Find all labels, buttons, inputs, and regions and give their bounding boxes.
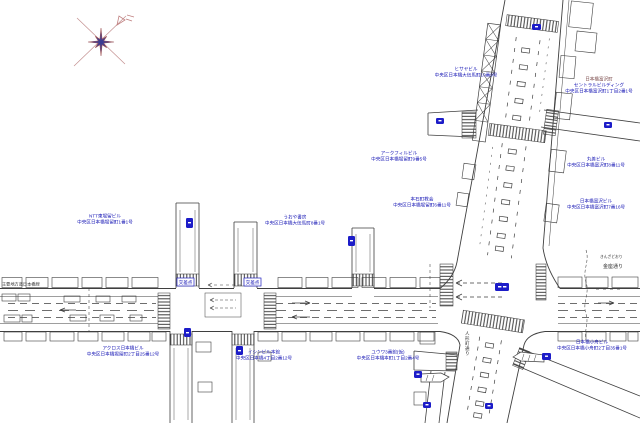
building-address: 中央区日本橋富沢町7番16号 [546,204,640,210]
building-label: 日本橋富沢ビル 中央区日本橋富沢町7番16号 [546,198,640,210]
building-address: 中央区日本橋堀留町2丁目25番12号 [73,351,173,357]
road-map-canvas: 交差点 交差点 ヒサヤビル 中央区日本橋大伝馬町10番9号 日本橋富沢町 セント… [0,0,640,423]
building-address: 中央区日本橋本町1丁目2番4号 [338,355,438,361]
building-label: アクロス日本橋ビル 中央区日本橋堀留町2丁目25番12号 [73,345,173,357]
intersection-sign-icon [495,283,509,291]
building-label: 丸善ビル 中央区日本橋富沢町8番11号 [546,156,640,168]
building-label: 日本橋富沢町 セントラルビルディング 中央区日本橋富沢町1丁目2番1号 [549,76,640,94]
building-label: イシンビル本館 中央区日本橋4丁目2番12号 [214,349,314,361]
building-label: アークフィルビル 中央区日本橋堀留町9番5号 [349,150,449,162]
building-label: 本石町教会 中央区日本橋堀留町6番11号 [372,196,472,208]
signal-name: 交差点 [246,279,260,286]
signal-name: 交差点 [179,279,193,286]
building-label: NTT東堀留ビル 中央区日本橋堀留町1番1号 [55,213,155,225]
road-designation-label: 主要地方道日本橋線 [2,281,40,287]
road-name-kana: きんざどおり [600,254,623,260]
signal-name-boxes: 交差点 交差点 [177,278,261,286]
building-address: 中央区日本橋富沢町8番11号 [546,162,640,168]
building-label: 日本橋小舟ビル 中央区日本橋小舟町2丁目35番1号 [542,339,640,351]
road-name-vertical: 人形町通り [464,331,471,356]
crosswalks [158,109,559,370]
compass-rose [74,15,134,66]
diagonal-road-edges [440,0,569,289]
building-address: 中央区日本橋小舟町2丁目35番1号 [542,345,640,351]
building-address: 中央区日本橋大伝馬町10番9号 [416,72,516,78]
building-address: 中央区日本橋堀留町9番5号 [349,156,449,162]
main-road-lane-dashes [8,304,638,318]
lower-road-edges [440,332,545,423]
map-linework: 交差点 交差点 [0,0,640,423]
building-address: 中央区日本橋4丁目2番12号 [214,355,314,361]
building-address: 中央区日本橋富沢町1丁目2番1号 [549,88,640,94]
building-address: 中央区日本橋堀留町1番1号 [55,219,155,225]
building-label: うおや書房 中央区日本橋大伝馬町8番1号 [245,214,345,226]
building-address: 中央区日本橋堀留町6番11号 [372,202,472,208]
lower-road-markings [467,337,502,420]
road-name: 金座通り [603,262,623,270]
building-address: 中央区日本橋大伝馬町8番1号 [245,220,345,226]
building-label: ヒサヤビル 中央区日本橋大伝馬町10番9号 [416,66,516,78]
building-label: ユウワ3番館(仮) 中央区日本橋本町1丁目2番4号 [338,349,438,361]
